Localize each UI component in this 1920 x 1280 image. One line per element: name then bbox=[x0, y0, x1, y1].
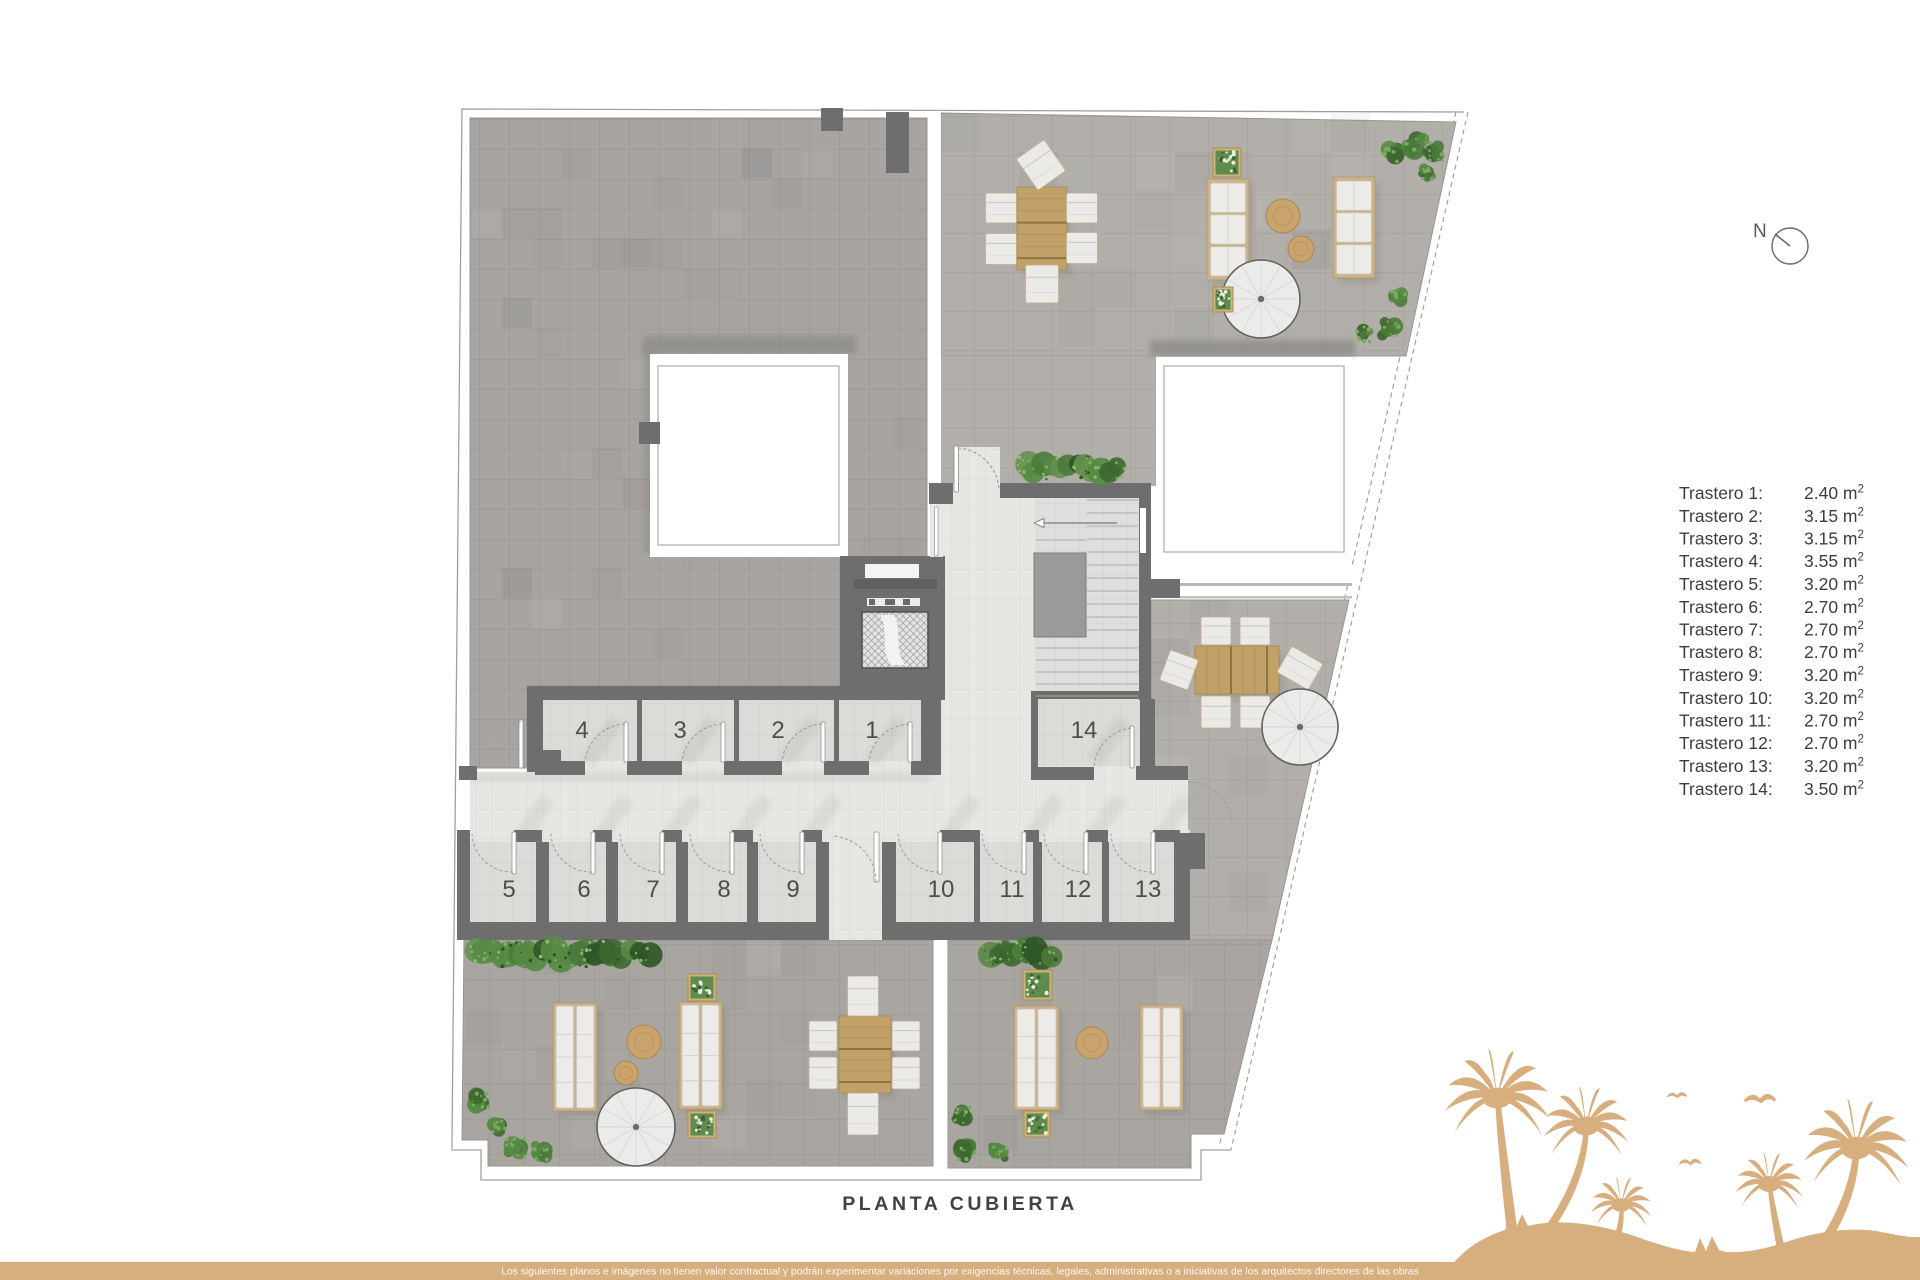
svg-text:3.20 m2: 3.20 m2 bbox=[1804, 574, 1864, 594]
svg-text:3.20 m2: 3.20 m2 bbox=[1804, 688, 1864, 708]
svg-text:2.70 m2: 2.70 m2 bbox=[1804, 597, 1864, 617]
svg-text:1: 1 bbox=[865, 717, 878, 744]
svg-text:Trastero 13:: Trastero 13: bbox=[1679, 756, 1773, 776]
svg-text:Trastero 11:: Trastero 11: bbox=[1679, 711, 1771, 731]
svg-text:3.15 m2: 3.15 m2 bbox=[1804, 529, 1864, 549]
svg-text:Trastero 3:: Trastero 3: bbox=[1679, 529, 1763, 549]
svg-text:3.20 m2: 3.20 m2 bbox=[1804, 756, 1864, 776]
svg-text:Trastero 7:: Trastero 7: bbox=[1679, 620, 1763, 640]
svg-text:Trastero 10:: Trastero 10: bbox=[1679, 688, 1773, 708]
svg-text:2.70 m2: 2.70 m2 bbox=[1804, 642, 1864, 662]
svg-text:Los siguientes planos e imágen: Los siguientes planos e imágenes no tien… bbox=[501, 1267, 1419, 1278]
svg-text:2: 2 bbox=[771, 717, 784, 744]
svg-text:3.20 m2: 3.20 m2 bbox=[1804, 665, 1864, 685]
svg-text:Trastero 4:: Trastero 4: bbox=[1679, 551, 1763, 571]
svg-text:11: 11 bbox=[1000, 876, 1025, 903]
svg-text:2.70 m2: 2.70 m2 bbox=[1804, 733, 1864, 753]
svg-text:13: 13 bbox=[1135, 876, 1162, 903]
svg-text:6: 6 bbox=[577, 876, 590, 903]
svg-text:14: 14 bbox=[1071, 717, 1098, 744]
svg-text:4: 4 bbox=[575, 717, 588, 744]
svg-text:Trastero 12:: Trastero 12: bbox=[1679, 733, 1773, 753]
svg-text:5: 5 bbox=[502, 876, 515, 903]
svg-text:N: N bbox=[1753, 221, 1767, 242]
svg-text:8: 8 bbox=[717, 876, 730, 903]
svg-text:Trastero 14:: Trastero 14: bbox=[1679, 779, 1773, 799]
svg-text:3.15 m2: 3.15 m2 bbox=[1804, 506, 1864, 526]
svg-text:3.50 m2: 3.50 m2 bbox=[1804, 779, 1864, 799]
svg-text:Trastero 5:: Trastero 5: bbox=[1679, 574, 1763, 594]
svg-text:Trastero 8:: Trastero 8: bbox=[1679, 642, 1763, 662]
svg-text:Trastero 2:: Trastero 2: bbox=[1679, 506, 1763, 526]
svg-text:3.55 m2: 3.55 m2 bbox=[1804, 551, 1864, 571]
svg-text:Trastero 6:: Trastero 6: bbox=[1679, 597, 1763, 617]
svg-text:Trastero 1:: Trastero 1: bbox=[1679, 483, 1763, 503]
svg-text:9: 9 bbox=[786, 876, 799, 903]
svg-text:Trastero 9:: Trastero 9: bbox=[1679, 665, 1763, 685]
svg-text:2.70 m2: 2.70 m2 bbox=[1804, 620, 1864, 640]
svg-text:7: 7 bbox=[646, 876, 659, 903]
svg-text:PLANTA CUBIERTA: PLANTA CUBIERTA bbox=[842, 1193, 1078, 1215]
svg-text:3: 3 bbox=[673, 717, 686, 744]
svg-text:12: 12 bbox=[1065, 876, 1092, 903]
svg-text:2.40 m2: 2.40 m2 bbox=[1804, 483, 1864, 503]
svg-text:10: 10 bbox=[928, 876, 955, 903]
svg-text:2.70 m2: 2.70 m2 bbox=[1804, 711, 1864, 731]
